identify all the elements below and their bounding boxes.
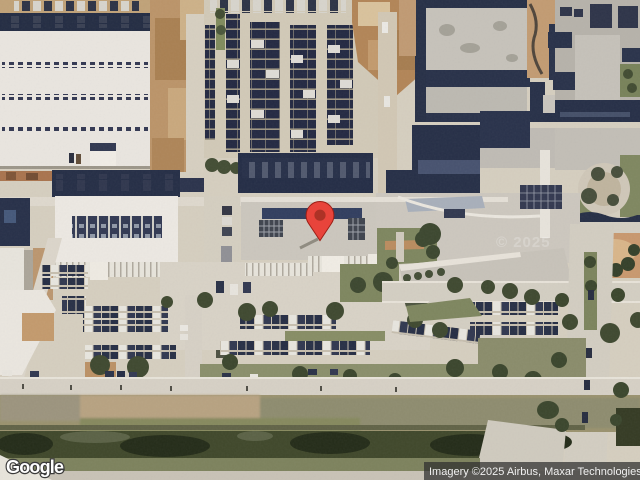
svg-text:Google: Google bbox=[6, 457, 64, 477]
svg-text:Imagery ©2025 Airbus, Maxar Te: Imagery ©2025 Airbus, Maxar Technologies bbox=[429, 466, 640, 478]
svg-text:© 2025: © 2025 bbox=[496, 234, 551, 251]
